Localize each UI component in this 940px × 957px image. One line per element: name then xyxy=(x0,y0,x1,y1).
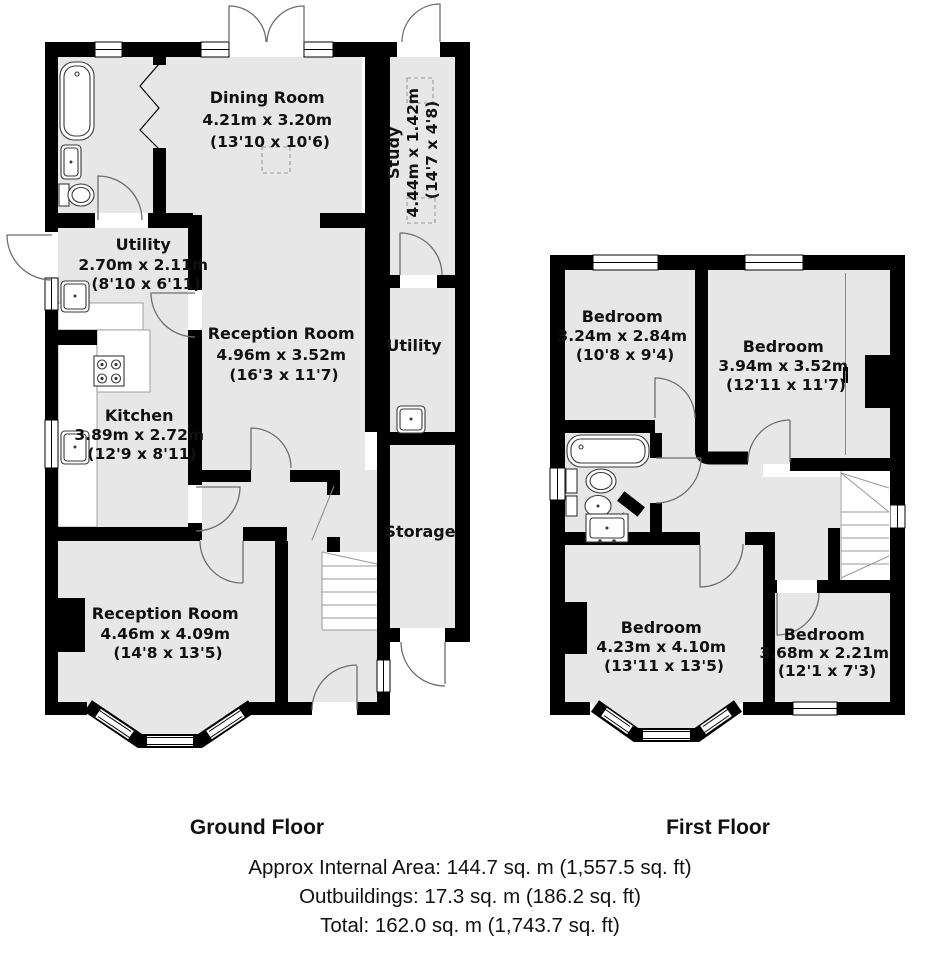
ff-bathtub-icon xyxy=(567,435,649,467)
ff-staircase xyxy=(840,471,890,580)
landing-floor xyxy=(700,532,745,545)
utility2-label: Utility xyxy=(386,336,442,355)
french-doors xyxy=(229,6,304,42)
bedroom-tl-floor xyxy=(565,270,695,420)
basin-icon xyxy=(61,145,81,179)
captions: Ground Floor First Floor Approx Internal… xyxy=(190,816,770,937)
landing-floor xyxy=(775,545,828,580)
window xyxy=(45,278,58,310)
stove-icon xyxy=(94,356,124,386)
stair-access-floor xyxy=(828,477,840,528)
dining-room-label: Dining Room 4.21m x 3.20m (13'10 x 10'6) xyxy=(202,88,337,151)
window xyxy=(593,255,658,270)
chimney-breast xyxy=(58,598,85,652)
window xyxy=(201,42,229,57)
window xyxy=(304,42,333,57)
floorplan-page: Dining Room 4.21m x 3.20m (13'10 x 10'6)… xyxy=(0,0,940,957)
floorplan-drawing: Dining Room 4.21m x 3.20m (13'10 x 10'6)… xyxy=(0,0,940,957)
utility2-sink-icon xyxy=(397,406,425,433)
ff-bidet-icon xyxy=(566,496,611,517)
window xyxy=(793,702,837,715)
total-area-text: Total: 162.0 sq. m (1,743.7 sq. ft) xyxy=(320,914,620,937)
ground-floor-caption: Ground Floor xyxy=(190,816,324,839)
toilet-icon xyxy=(59,184,94,206)
utility-sink-icon xyxy=(61,281,89,312)
bedroom-tr-recess xyxy=(865,355,890,408)
landing-floor xyxy=(708,464,763,532)
storage-label: Storage xyxy=(384,522,455,541)
reception-bottom-label: Reception Room 4.46m x 4.09m (14'8 x 13'… xyxy=(92,604,245,662)
window xyxy=(377,660,390,692)
bathtub-icon xyxy=(60,62,94,140)
outbuildings-text: Outbuildings: 17.3 sq. m (186.2 sq. ft) xyxy=(299,885,641,908)
first-floor-plan: Bedroom 3.24m x 2.84m (10'8 x 9'4) Bedro… xyxy=(550,255,905,739)
reception-top-label: Reception Room 4.96m x 3.52m (16'3 x 11'… xyxy=(208,324,361,384)
study-exterior-door xyxy=(402,4,440,42)
storage-exterior-door xyxy=(401,642,445,686)
ff-toilet-icon xyxy=(566,469,616,493)
window xyxy=(890,505,905,528)
ground-floor-plan: Dining Room 4.21m x 3.20m (13'10 x 10'6)… xyxy=(7,4,470,745)
internal-area-text: Approx Internal Area: 144.7 sq. m (1,557… xyxy=(248,856,691,879)
ff-basin-icon xyxy=(586,514,628,543)
utility-exterior-door xyxy=(7,235,52,280)
landing-floor xyxy=(655,420,695,433)
ff-chimney-breast xyxy=(565,602,587,654)
window xyxy=(550,468,565,500)
window xyxy=(95,42,122,57)
first-floor-caption: First Floor xyxy=(666,816,770,839)
window xyxy=(45,420,58,468)
window xyxy=(745,255,803,270)
